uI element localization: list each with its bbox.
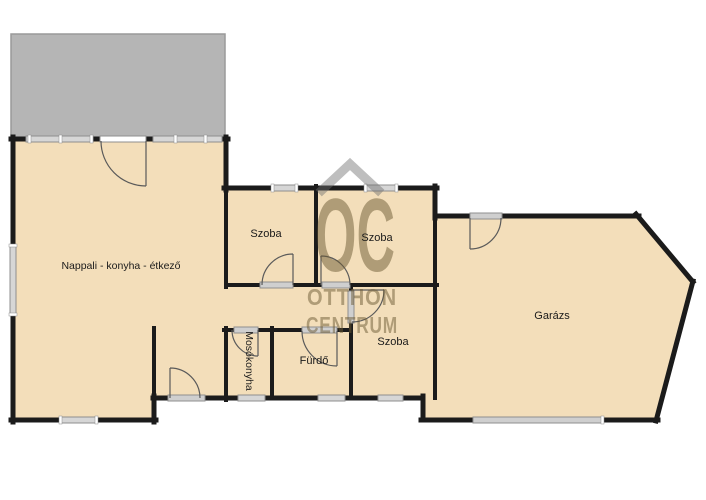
living-hall-floor <box>11 137 228 420</box>
watermark-line1: OTTHON <box>307 284 397 310</box>
floorplan-canvas: OC OTTHON CENTRUM Nappali - konyha - étk… <box>0 0 706 500</box>
garage-label: Garázs <box>534 310 570 322</box>
window-cap <box>395 184 398 192</box>
garage-ped-door-opening <box>470 213 502 219</box>
window-cap <box>295 184 298 192</box>
window <box>153 136 222 142</box>
laundry-label: Mosókonyha <box>243 331 255 391</box>
window-mullion <box>204 135 207 143</box>
window-cap <box>9 244 17 247</box>
terrace-door-opening <box>100 136 146 142</box>
garage-door-opening <box>473 417 603 423</box>
window-cap <box>95 416 98 424</box>
living-room-label: Nappali - konyha - étkező <box>61 260 180 272</box>
window <box>378 395 403 401</box>
window-mullion <box>174 135 177 143</box>
window <box>238 395 265 401</box>
window <box>272 185 297 191</box>
bedroom2-label: Szoba <box>361 232 393 244</box>
window-mullion <box>28 135 31 143</box>
window-mullion <box>90 135 93 143</box>
floorplan-svg: OC OTTHON CENTRUM Nappali - konyha - étk… <box>0 0 706 500</box>
window <box>60 417 97 423</box>
watermark: OC OTTHON CENTRUM <box>306 164 398 338</box>
window-cap <box>9 313 17 316</box>
bedroom1-door-opening <box>260 282 293 288</box>
window <box>10 245 16 315</box>
window <box>318 395 345 401</box>
watermark-line2: CENTRUM <box>306 312 398 338</box>
window-cap <box>271 184 274 192</box>
window-mullion <box>59 135 62 143</box>
bedroom3-label: Szoba <box>377 336 409 348</box>
bedroom1-label: Szoba <box>250 228 282 240</box>
terrace-area <box>11 34 225 138</box>
bathroom-label: Fürdő <box>300 355 329 367</box>
window-cap <box>601 416 604 424</box>
window-cap <box>59 416 62 424</box>
